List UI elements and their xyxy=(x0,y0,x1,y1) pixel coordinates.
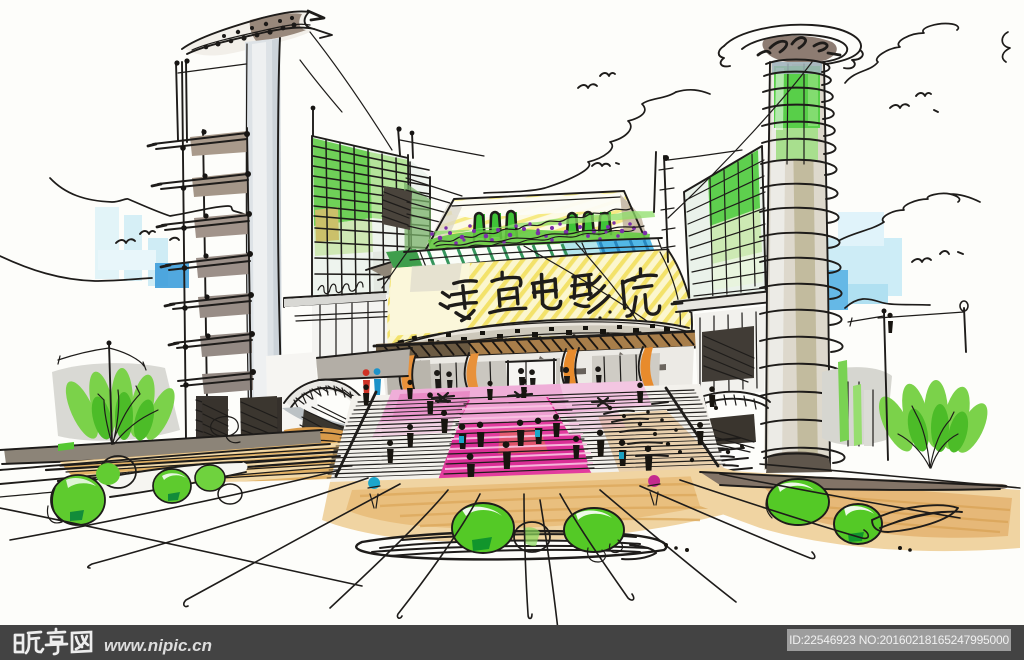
svg-text:www.nipic.cn: www.nipic.cn xyxy=(104,636,212,655)
svg-text:ID:22546923 NO:201602181652479: ID:22546923 NO:20160218165247995000 xyxy=(789,633,1009,647)
